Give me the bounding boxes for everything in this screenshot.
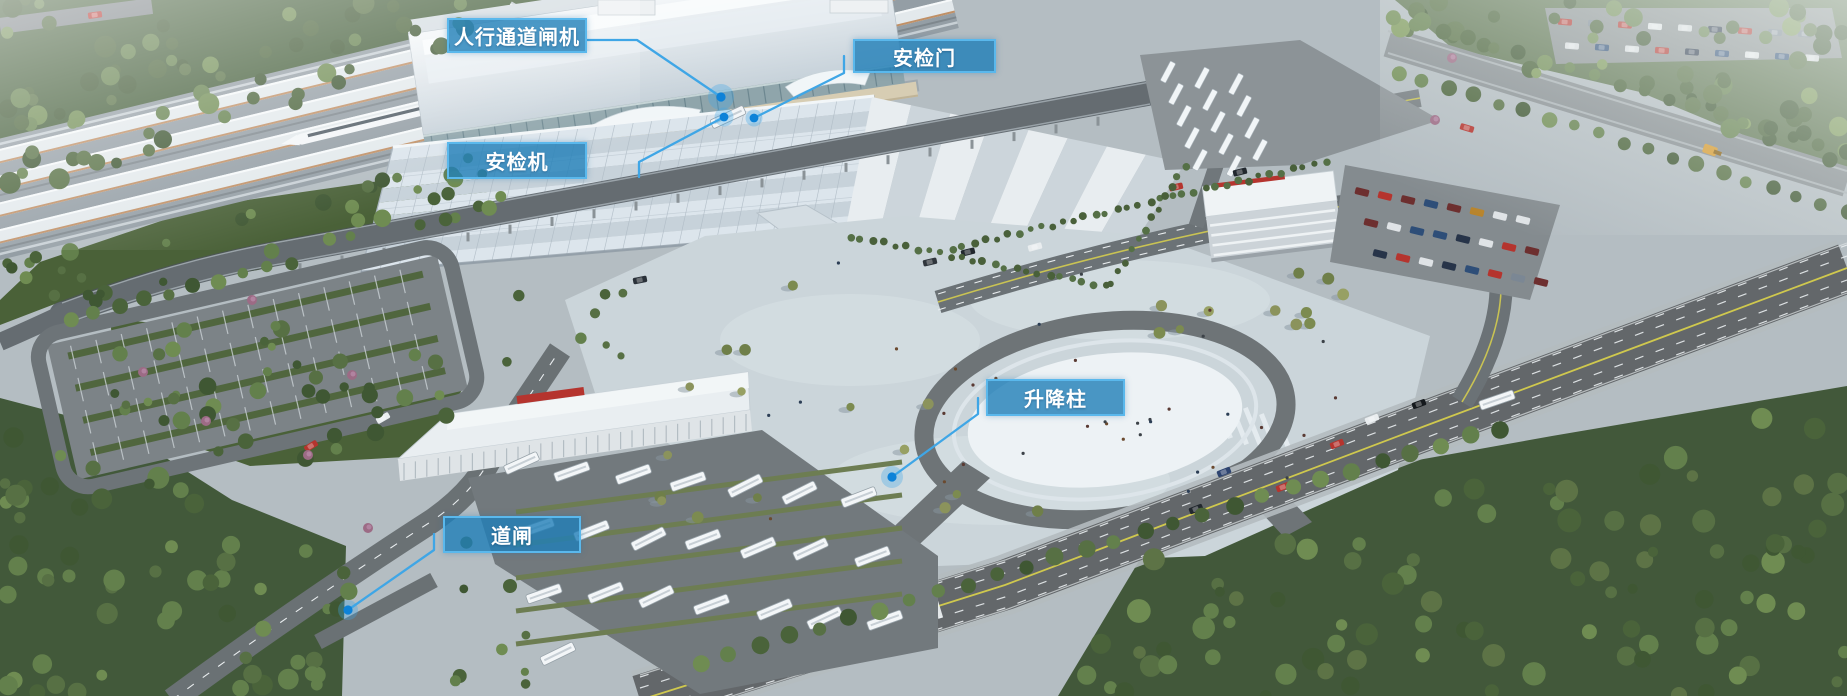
annotated-station-aerial-image: 人行通道闸机 安检门 安检机 升降柱 道闸 [0,0,1847,696]
station-aerial-scene [0,0,1847,696]
callout-bollard[interactable]: 升降柱 [986,379,1125,416]
pedestrian-gate-marker-dot[interactable] [716,92,725,101]
bollard-marker-dot[interactable] [887,472,896,481]
callout-pedestrian-gate[interactable]: 人行通道闸机 [447,18,587,53]
callout-security-door[interactable]: 安检门 [853,39,996,73]
callout-security-scanner-label: 安检机 [486,146,549,175]
callout-security-scanner[interactable]: 安检机 [447,142,587,179]
callout-barrier-gate-label: 道闸 [491,520,533,549]
barrier-gate-marker-dot[interactable] [343,605,352,614]
callout-pedestrian-gate-label: 人行通道闸机 [454,21,580,50]
callout-barrier-gate[interactable]: 道闸 [443,516,581,553]
callout-bollard-label: 升降柱 [1024,383,1087,412]
security-scanner-marker-dot[interactable] [720,113,729,122]
callout-security-door-label: 安检门 [893,42,956,71]
security-door-marker-dot[interactable] [750,114,759,123]
